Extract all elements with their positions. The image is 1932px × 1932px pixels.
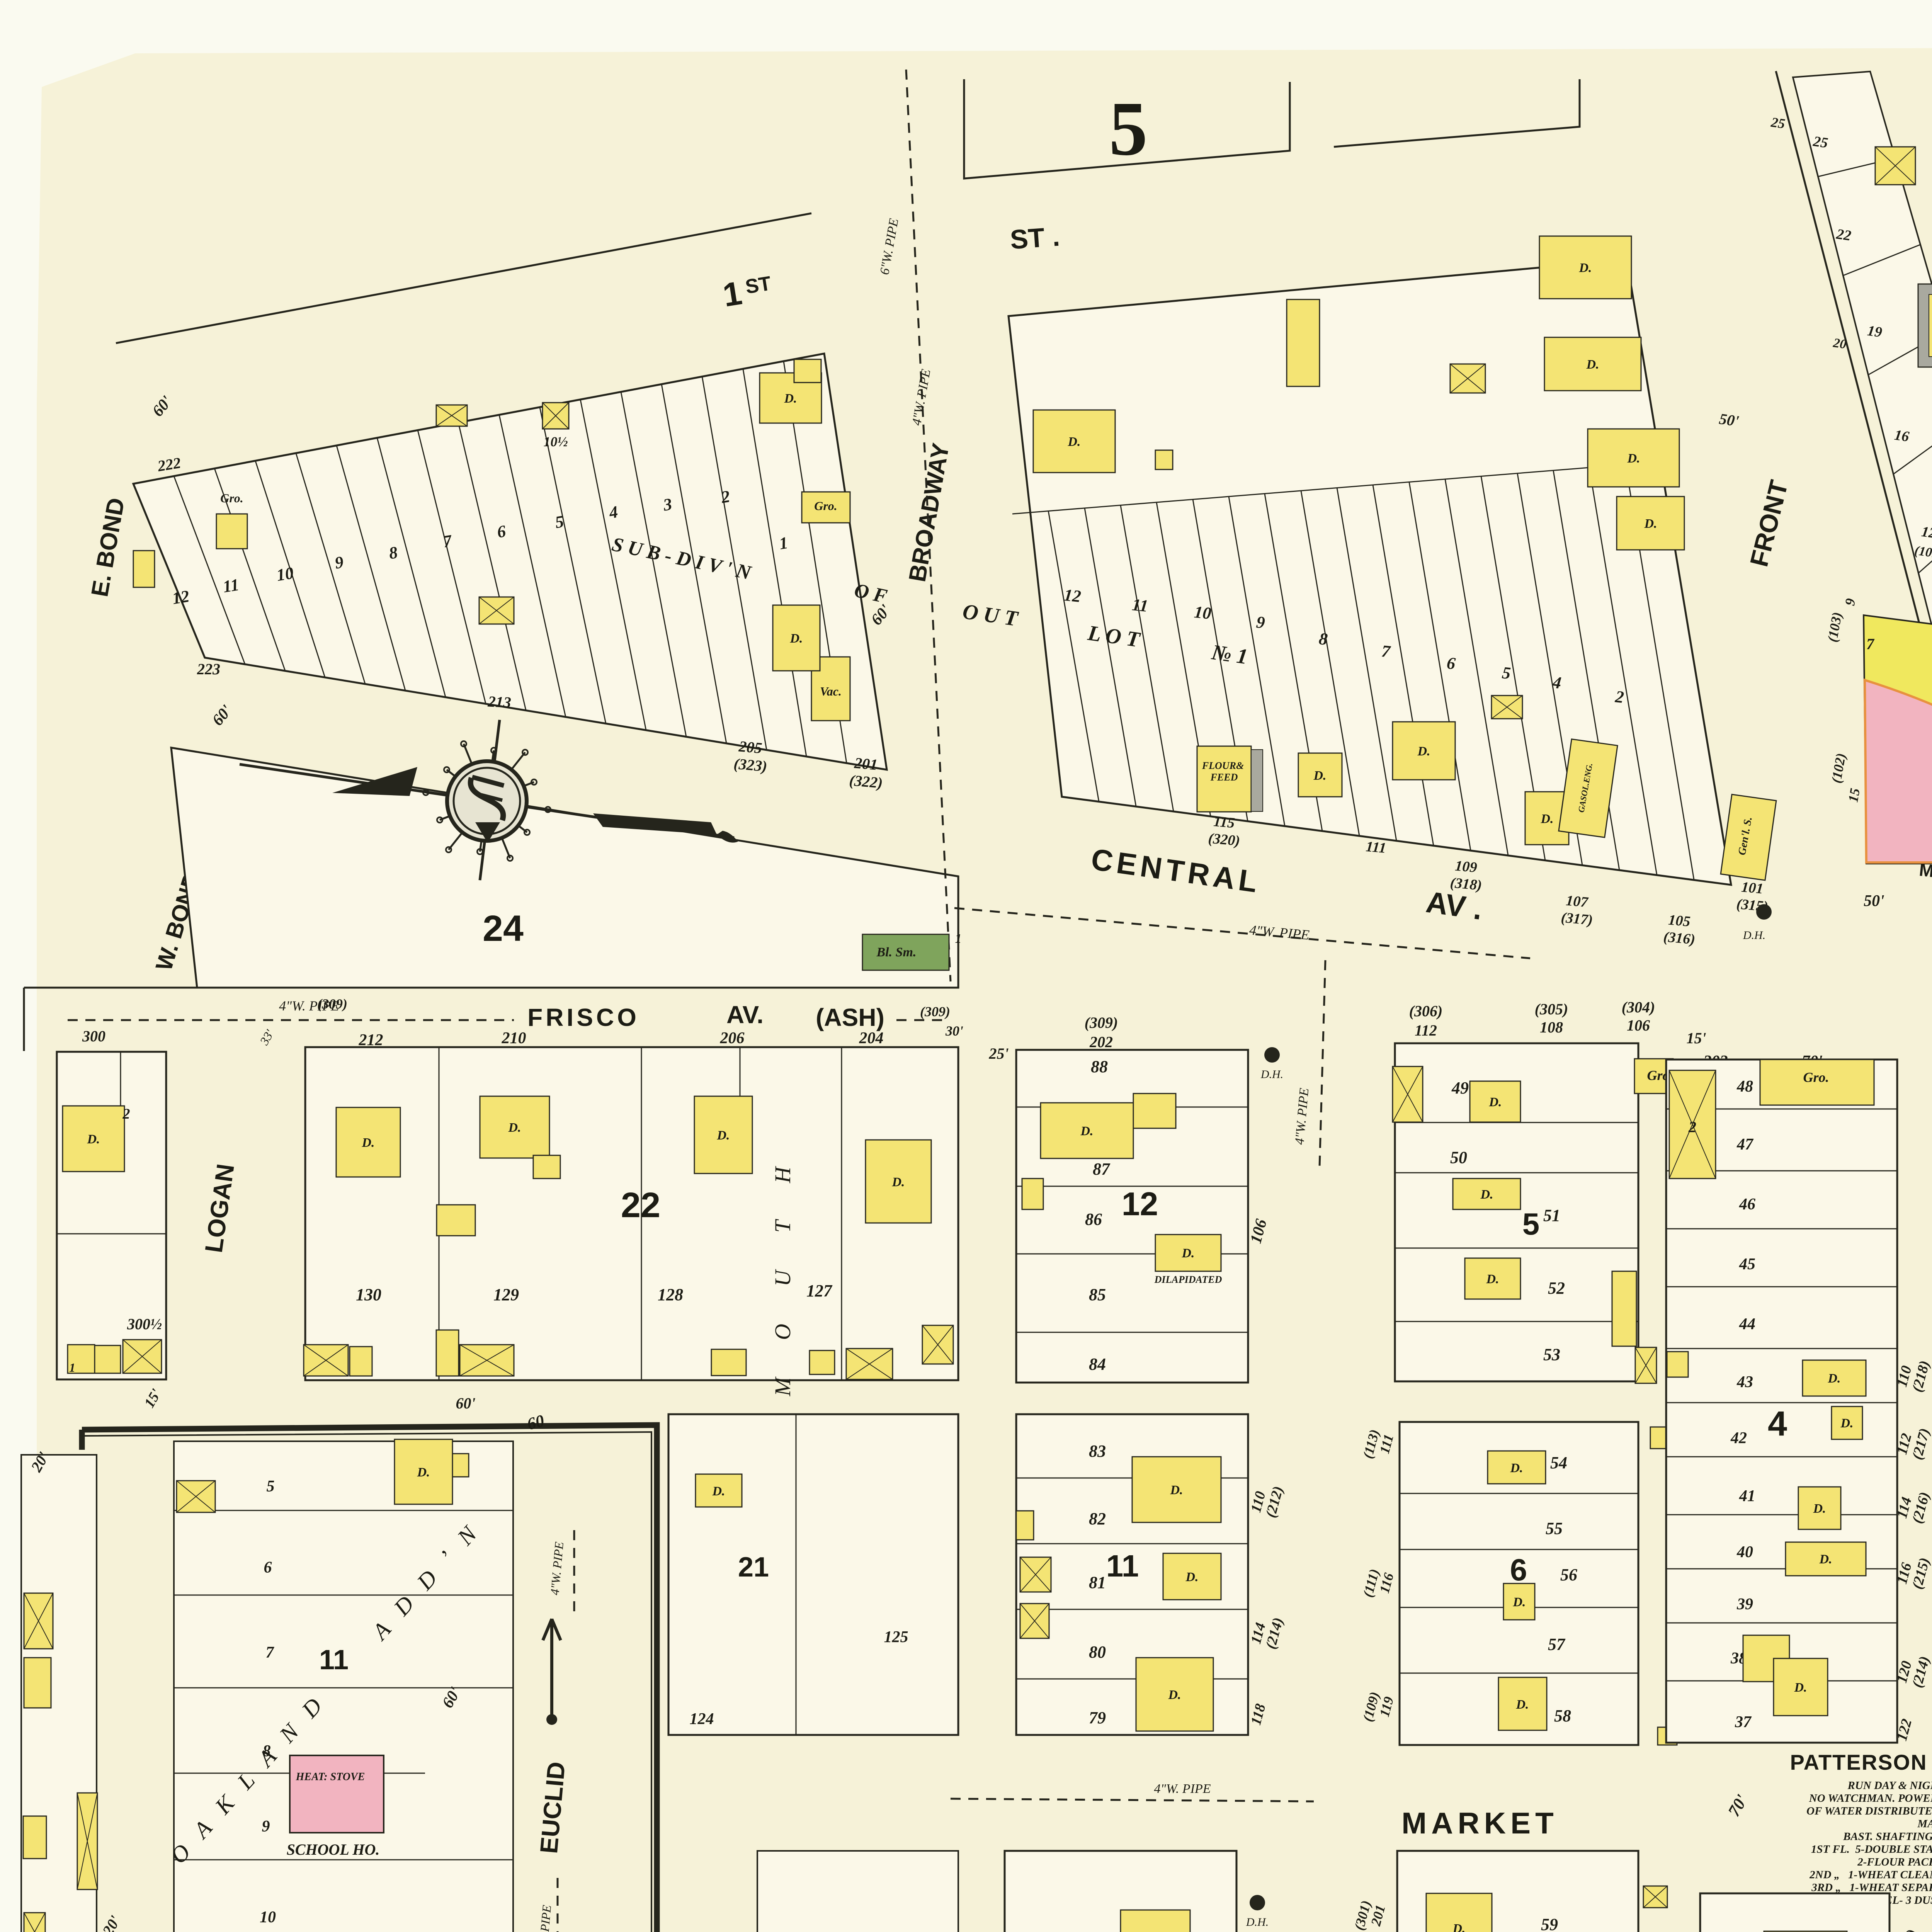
svg-text:Gro.: Gro. — [220, 491, 243, 505]
svg-text:9: 9 — [262, 1818, 270, 1835]
svg-text:130: 130 — [356, 1285, 381, 1304]
svg-text:5: 5 — [267, 1478, 275, 1495]
svg-text:D.: D. — [1512, 1595, 1526, 1609]
svg-text:D.: D. — [712, 1484, 725, 1498]
svg-text:D.: D. — [1515, 1697, 1529, 1712]
svg-text:D.: D. — [789, 631, 803, 646]
svg-text:SCHOOL HO.: SCHOOL HO. — [287, 1841, 380, 1858]
svg-text:11: 11 — [319, 1645, 349, 1675]
svg-text:(316): (316) — [1663, 929, 1696, 948]
svg-text:D.: D. — [1452, 1922, 1465, 1932]
svg-text:HEAT: STOVE: HEAT: STOVE — [296, 1771, 365, 1783]
svg-text:1: 1 — [69, 1361, 75, 1374]
svg-text:1: 1 — [955, 932, 962, 946]
svg-text:55: 55 — [1546, 1519, 1563, 1538]
svg-text:115: 115 — [1213, 813, 1235, 832]
svg-text:Bl. Sm.: Bl. Sm. — [876, 945, 917, 959]
svg-text:6: 6 — [1510, 1553, 1527, 1587]
svg-text:D.: D. — [1168, 1688, 1181, 1702]
svg-text:2: 2 — [122, 1106, 130, 1122]
svg-text:AV.: AV. — [726, 1001, 764, 1029]
svg-text:88: 88 — [1091, 1057, 1108, 1076]
svg-text:15': 15' — [1686, 1029, 1706, 1047]
svg-text:43: 43 — [1736, 1373, 1753, 1391]
svg-text:300: 300 — [82, 1027, 105, 1045]
svg-text:D.: D. — [1185, 1570, 1198, 1584]
svg-text:111: 111 — [1365, 838, 1387, 856]
svg-text:D.H.: D.H. — [1260, 1068, 1283, 1081]
svg-text:2ND „ 1-WHEAT CLEANER-2 SUCT: 2ND „ 1-WHEAT CLEANER-2 SUCTION FANS. 1 … — [1809, 1869, 1932, 1881]
svg-text:11: 11 — [1131, 595, 1149, 616]
svg-text:1ST FL. 5-DOUBLE STAND ROLLS.: 1ST FL. 5-DOUBLE STAND ROLLS.1-3 HIGH CO… — [1811, 1843, 1932, 1855]
svg-text:222: 222 — [156, 454, 182, 475]
svg-text:53: 53 — [1543, 1345, 1560, 1364]
svg-text:D.: D. — [1644, 517, 1657, 531]
svg-text:FEED: FEED — [1210, 772, 1238, 783]
svg-text:25: 25 — [1812, 133, 1829, 151]
svg-text:PATTERSON MILLING CO.: PATTERSON MILLING CO. — [1790, 1750, 1932, 1774]
svg-text:206: 206 — [720, 1029, 745, 1047]
svg-text:MACHINERY: MACHINERY — [1917, 1818, 1932, 1830]
svg-text:(318): (318) — [1449, 875, 1483, 894]
svg-text:45: 45 — [1739, 1255, 1755, 1273]
svg-text:128: 128 — [658, 1285, 683, 1304]
svg-text:RUN DAY & NIGHT. CAPY 100 BBLS: RUN DAY & NIGHT. CAPY 100 BBLS. — [1847, 1779, 1932, 1792]
svg-text:108: 108 — [1540, 1019, 1563, 1036]
svg-text:16: 16 — [1893, 427, 1910, 445]
svg-text:48: 48 — [1736, 1078, 1753, 1095]
svg-text:11: 11 — [1106, 1549, 1139, 1583]
svg-text:7: 7 — [1866, 635, 1875, 653]
svg-text:82: 82 — [1089, 1509, 1106, 1528]
svg-text:10½: 10½ — [544, 434, 568, 449]
svg-text:201: 201 — [853, 754, 878, 773]
svg-text:11: 11 — [221, 575, 240, 596]
svg-text:(309): (309) — [317, 996, 347, 1012]
svg-text:41: 41 — [1739, 1487, 1755, 1505]
svg-text:FLOUR&: FLOUR& — [1202, 760, 1244, 771]
svg-text:22: 22 — [1835, 226, 1852, 244]
svg-text:D.: D. — [1170, 1483, 1183, 1497]
svg-text:25': 25' — [988, 1045, 1009, 1062]
svg-text:BAST. SHAFTING.: BAST. SHAFTING. — [1843, 1830, 1932, 1843]
svg-text:D.: D. — [1578, 261, 1592, 275]
svg-text:59: 59 — [1541, 1915, 1558, 1932]
svg-text:№ 1: № 1 — [1210, 640, 1249, 669]
svg-text:D.: D. — [87, 1132, 100, 1146]
svg-text:42: 42 — [1730, 1429, 1747, 1447]
svg-text:50': 50' — [1718, 410, 1740, 430]
svg-text:50': 50' — [1864, 892, 1884, 910]
svg-text:101: 101 — [1741, 879, 1764, 897]
svg-text:40: 40 — [1736, 1543, 1753, 1561]
svg-text:39: 39 — [1736, 1595, 1753, 1613]
svg-text:6: 6 — [264, 1559, 272, 1577]
svg-text:MARKET: MARKET — [1401, 1806, 1558, 1840]
svg-text:10: 10 — [1193, 602, 1212, 623]
svg-text:58: 58 — [1554, 1706, 1571, 1725]
svg-text:(ASH): (ASH) — [816, 1003, 884, 1031]
svg-text:D.: D. — [1540, 812, 1553, 826]
svg-text:87: 87 — [1093, 1160, 1111, 1179]
svg-text:10: 10 — [260, 1908, 276, 1926]
svg-text:85: 85 — [1089, 1285, 1106, 1304]
svg-text:D.: D. — [1480, 1187, 1493, 1202]
svg-text:(322): (322) — [849, 771, 883, 791]
svg-text:D.: D. — [1067, 435, 1080, 449]
svg-text:(323): (323) — [733, 755, 768, 775]
svg-text:300½: 300½ — [127, 1315, 162, 1333]
svg-text:213: 213 — [487, 692, 512, 711]
svg-text:D.: D. — [716, 1128, 730, 1143]
svg-text:19: 19 — [1866, 323, 1883, 341]
svg-text:OF WATER DISTRIBUTED- LIGHTS:: OF WATER DISTRIBUTED- LIGHTS: ELECTRIC- — [1806, 1805, 1932, 1817]
svg-text:(320): (320) — [1207, 830, 1241, 849]
svg-text:DILAPIDATED: DILAPIDATED — [1154, 1274, 1222, 1285]
svg-text:223: 223 — [197, 660, 220, 678]
svg-text:D.H.: D.H. — [1246, 1916, 1269, 1929]
svg-text:54: 54 — [1550, 1453, 1567, 1472]
svg-text:80: 80 — [1089, 1643, 1106, 1662]
svg-text:125: 125 — [884, 1628, 908, 1646]
svg-text:(309): (309) — [1085, 1014, 1118, 1031]
svg-text:D.H.: D.H. — [1743, 929, 1765, 942]
svg-text:81: 81 — [1089, 1573, 1106, 1592]
svg-text:129: 129 — [493, 1285, 519, 1304]
svg-text:4"W. PIPE: 4"W. PIPE — [1154, 1782, 1211, 1796]
svg-text:D.: D. — [417, 1465, 430, 1480]
svg-text:D.: D. — [1813, 1502, 1826, 1516]
svg-text:D.: D. — [1586, 357, 1599, 372]
svg-text:105: 105 — [1668, 912, 1691, 930]
svg-text:Gro.: Gro. — [1803, 1070, 1829, 1085]
svg-text:22: 22 — [621, 1185, 660, 1225]
svg-text:FRISCO: FRISCO — [527, 1003, 639, 1031]
svg-text:56: 56 — [1560, 1565, 1577, 1584]
svg-text:57: 57 — [1548, 1635, 1566, 1654]
svg-text:44: 44 — [1739, 1315, 1755, 1333]
svg-text:Gro.: Gro. — [814, 499, 837, 513]
svg-text:106: 106 — [1627, 1017, 1650, 1034]
svg-text:20: 20 — [1832, 336, 1847, 352]
svg-text:12: 12 — [1063, 585, 1082, 606]
svg-text:2-FLOUR PACKERS. 1 BRANPACKER: 2-FLOUR PACKERS. 1 BRANPACKER — [1857, 1856, 1932, 1868]
svg-text:30': 30' — [945, 1023, 963, 1039]
svg-text:79: 79 — [1089, 1708, 1106, 1727]
svg-text:D.: D. — [1488, 1095, 1502, 1109]
svg-text:205: 205 — [738, 737, 763, 757]
svg-text:D.: D. — [1313, 769, 1326, 783]
svg-text:ST .: ST . — [1009, 221, 1061, 255]
svg-text:(304): (304) — [1622, 998, 1655, 1016]
svg-text:107: 107 — [1565, 893, 1589, 911]
svg-text:5: 5 — [1522, 1207, 1540, 1241]
svg-text:86: 86 — [1085, 1210, 1102, 1229]
svg-text:12: 12 — [1122, 1186, 1158, 1223]
svg-text:D.: D. — [784, 391, 797, 406]
svg-text:12: 12 — [1920, 524, 1932, 542]
svg-text:37: 37 — [1735, 1713, 1752, 1731]
svg-text:12: 12 — [171, 587, 190, 608]
svg-text:D.: D. — [1827, 1371, 1840, 1386]
svg-text:2: 2 — [1688, 1118, 1696, 1136]
svg-text:210: 210 — [502, 1029, 526, 1047]
svg-text:109: 109 — [1454, 858, 1478, 876]
svg-text:D.: D. — [1840, 1416, 1853, 1430]
svg-text:D.: D. — [1417, 744, 1430, 759]
svg-text:83: 83 — [1089, 1442, 1106, 1461]
svg-text:50: 50 — [1450, 1148, 1467, 1167]
svg-text:84: 84 — [1089, 1355, 1106, 1374]
svg-text:D.: D. — [1080, 1124, 1093, 1138]
svg-text:15: 15 — [1845, 787, 1863, 803]
svg-text:112: 112 — [1415, 1022, 1437, 1039]
svg-text:10: 10 — [275, 563, 295, 585]
svg-text:204: 204 — [859, 1029, 884, 1047]
svg-text:D.: D. — [1181, 1246, 1194, 1260]
svg-text:D.: D. — [1819, 1552, 1832, 1566]
svg-text:3RD „ 1-WHEAT SEPARATOR- SCO: 3RD „ 1-WHEAT SEPARATOR- SCOURER- 2 FLOU… — [1811, 1881, 1932, 1894]
svg-text:(309): (309) — [920, 1004, 950, 1019]
svg-text:NO WATCHMAN. POWER: STEAM: FUE: NO WATCHMAN. POWER: STEAM: FUEL: COAL: B… — [1809, 1792, 1932, 1804]
svg-text:D.: D. — [1627, 451, 1640, 466]
svg-text:202: 202 — [1089, 1033, 1113, 1051]
svg-text:(305): (305) — [1535, 1000, 1568, 1018]
svg-text:D.: D. — [361, 1136, 374, 1150]
svg-text:25: 25 — [1770, 114, 1786, 132]
svg-text:7: 7 — [266, 1644, 275, 1662]
svg-text:24: 24 — [483, 908, 524, 949]
svg-text:47: 47 — [1736, 1136, 1754, 1153]
svg-text:124: 124 — [690, 1710, 714, 1728]
svg-text:5: 5 — [1109, 86, 1148, 172]
svg-text:Vac.: Vac. — [820, 684, 842, 698]
svg-text:60': 60' — [456, 1395, 475, 1412]
svg-text:52: 52 — [1548, 1279, 1565, 1298]
svg-text:46: 46 — [1739, 1196, 1755, 1213]
svg-text:D.: D. — [891, 1175, 905, 1189]
svg-text:D.: D. — [1794, 1680, 1807, 1695]
svg-text:D.: D. — [508, 1121, 521, 1135]
svg-text:127: 127 — [806, 1281, 833, 1300]
svg-text:(306): (306) — [1409, 1002, 1443, 1020]
svg-text:ST: ST — [744, 272, 773, 298]
svg-text:D.: D. — [1486, 1272, 1499, 1286]
svg-text:51: 51 — [1543, 1206, 1560, 1225]
svg-text:49: 49 — [1451, 1078, 1469, 1097]
svg-text:4: 4 — [1768, 1405, 1787, 1443]
svg-text:21: 21 — [738, 1552, 769, 1583]
svg-text:(317): (317) — [1560, 910, 1594, 929]
svg-text:D.: D. — [1510, 1461, 1523, 1475]
